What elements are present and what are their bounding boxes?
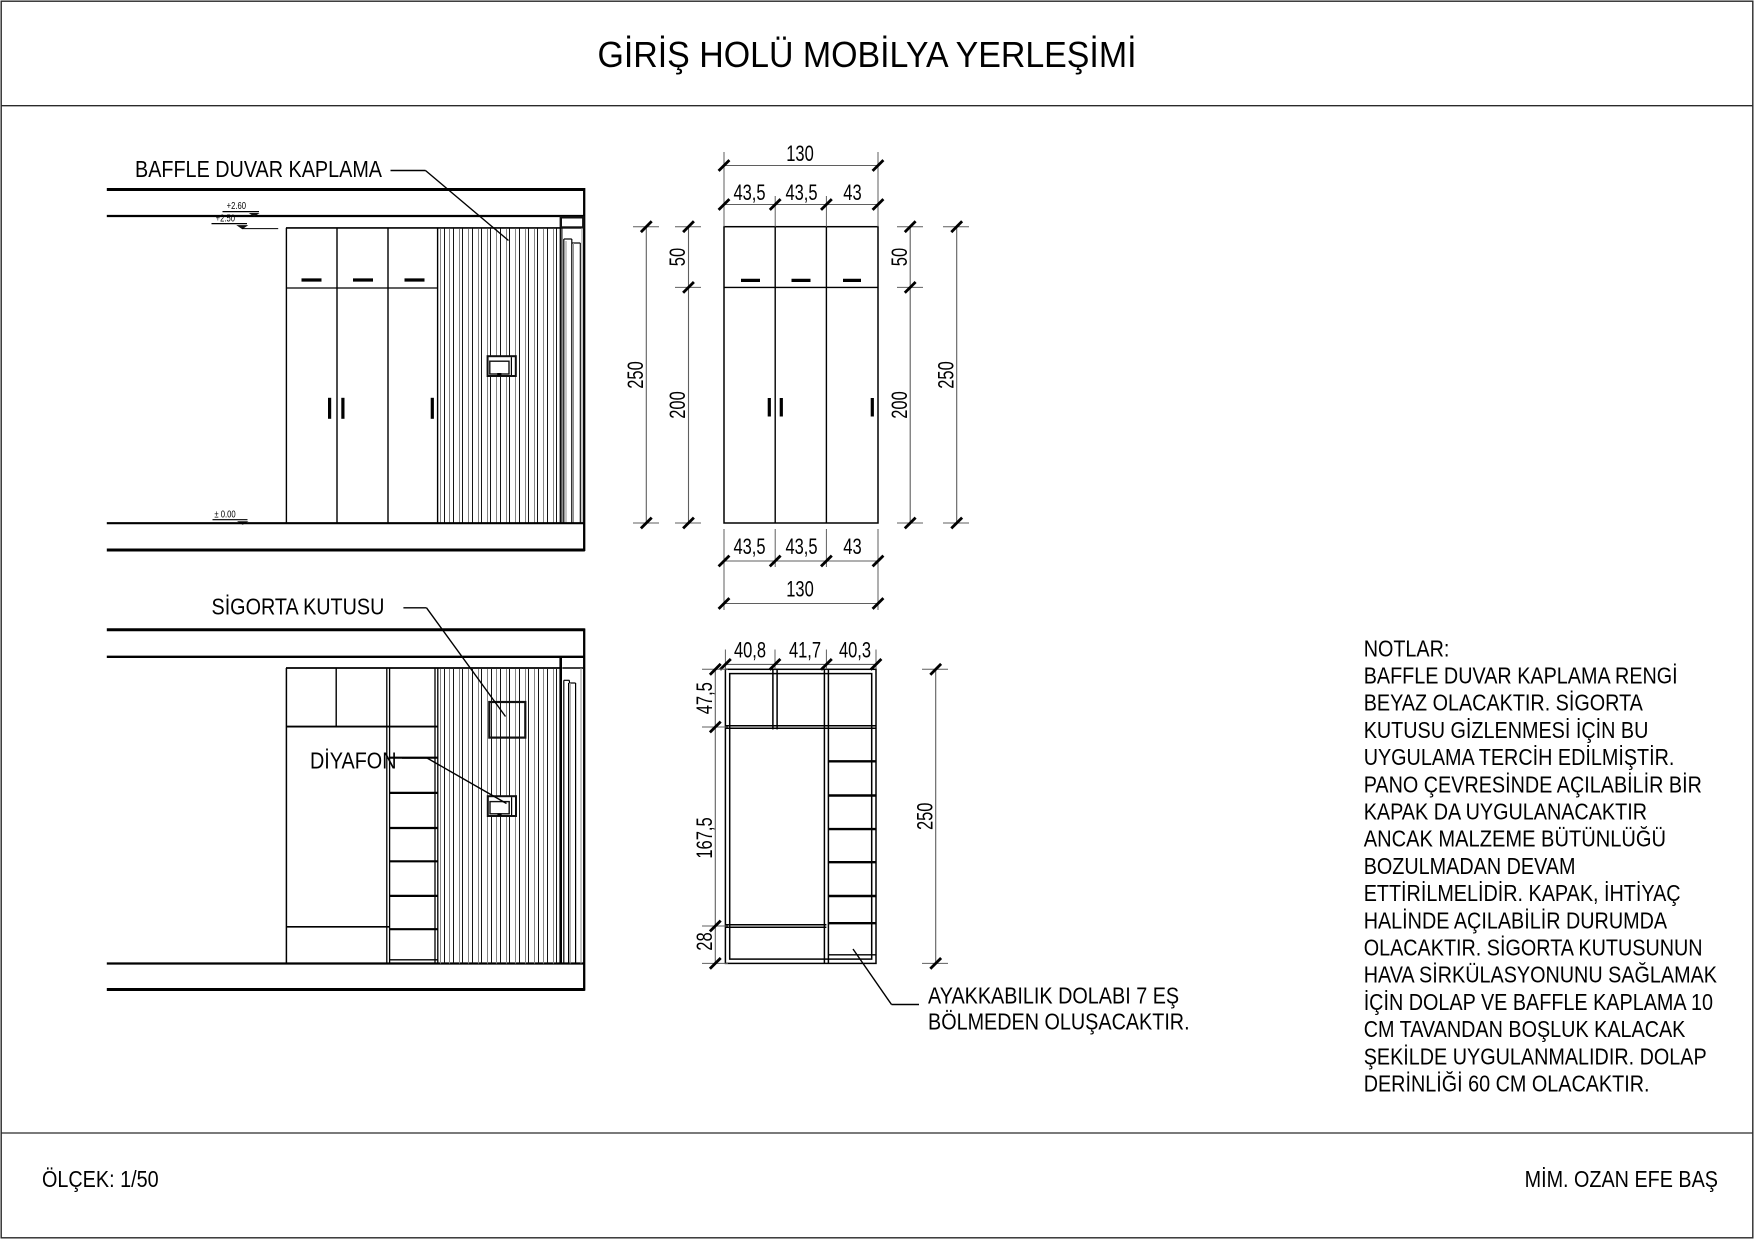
svg-text:43: 43 [843,180,861,205]
svg-text:ETTİRİLMELİDİR. KAPAK, İHTİYAÇ: ETTİRİLMELİDİR. KAPAK, İHTİYAÇ [1364,880,1681,906]
svg-text:+2.50: +2.50 [216,213,236,225]
svg-text:200: 200 [887,391,912,419]
svg-text:200: 200 [665,391,690,419]
svg-text:50: 50 [887,248,912,266]
svg-text:KUTUSU GİZLENMESİ İÇİN BU: KUTUSU GİZLENMESİ İÇİN BU [1364,717,1649,743]
svg-text:UYGULAMA TERCİH EDİLMİŞTİR.: UYGULAMA TERCİH EDİLMİŞTİR. [1364,744,1675,770]
svg-text:İÇİN DOLAP VE BAFFLE KAPLAMA 1: İÇİN DOLAP VE BAFFLE KAPLAMA 10 [1364,989,1713,1015]
svg-text:BOZULMADAN DEVAM: BOZULMADAN DEVAM [1364,853,1576,879]
svg-text:43,5: 43,5 [733,180,765,205]
svg-text:AYAKKABILIK DOLABI 7 EŞ: AYAKKABILIK DOLABI 7 EŞ [928,982,1179,1008]
svg-text:ANCAK MALZEME BÜTÜNLÜĞÜ: ANCAK MALZEME BÜTÜNLÜĞÜ [1364,826,1666,852]
svg-text:43,5: 43,5 [785,534,817,559]
svg-text:28: 28 [692,932,717,950]
svg-text:BAFFLE DUVAR KAPLAMA RENGİ: BAFFLE DUVAR KAPLAMA RENGİ [1364,663,1678,689]
svg-text:43: 43 [843,534,861,559]
svg-text:BEYAZ OLACAKTIR. SİGORTA: BEYAZ OLACAKTIR. SİGORTA [1364,690,1644,716]
svg-text:OLACAKTIR. SİGORTA KUTUSUNUN: OLACAKTIR. SİGORTA KUTUSUNUN [1364,935,1703,961]
svg-text:KAPAK DA UYGULANACAKTIR: KAPAK DA UYGULANACAKTIR [1364,799,1647,825]
svg-text:130: 130 [786,141,814,166]
svg-text:MİM. OZAN EFE BAŞ: MİM. OZAN EFE BAŞ [1525,1166,1718,1192]
svg-text:HALİNDE AÇILABİLİR DURUMDA: HALİNDE AÇILABİLİR DURUMDA [1364,907,1668,933]
svg-text:SİGORTA KUTUSU: SİGORTA KUTUSU [212,593,385,619]
svg-text:50: 50 [665,248,690,266]
svg-text:250: 250 [933,361,958,389]
svg-text:43,5: 43,5 [785,180,817,205]
svg-text:40,8: 40,8 [734,638,766,663]
svg-text:PANO ÇEVRESİNDE AÇILABİLİR BİR: PANO ÇEVRESİNDE AÇILABİLİR BİR [1364,771,1702,797]
svg-text:+2.60: +2.60 [227,200,247,212]
svg-text:130: 130 [786,577,814,602]
svg-text:167,5: 167,5 [692,817,717,858]
svg-text:NOTLAR:: NOTLAR: [1364,635,1450,661]
svg-text:DİYAFON: DİYAFON [310,747,397,773]
svg-text:BÖLMEDEN OLUŞACAKTIR.: BÖLMEDEN OLUŞACAKTIR. [928,1009,1190,1035]
svg-text:40,3: 40,3 [839,638,871,663]
svg-text:ŞEKİLDE UYGULANMALIDIR. DOLAP: ŞEKİLDE UYGULANMALIDIR. DOLAP [1364,1043,1707,1069]
svg-text:BAFFLE DUVAR KAPLAMA: BAFFLE DUVAR KAPLAMA [135,156,383,182]
svg-text:47,5: 47,5 [692,682,717,714]
svg-text:43,5: 43,5 [733,534,765,559]
svg-text:CM TAVANDAN BOŞLUK KALACAK: CM TAVANDAN BOŞLUK KALACAK [1364,1016,1686,1042]
svg-text:ÖLÇEK: 1/50: ÖLÇEK: 1/50 [42,1166,159,1192]
svg-text:250: 250 [912,803,937,831]
svg-text:HAVA SİRKÜLASYONUNU SAĞLAMAK: HAVA SİRKÜLASYONUNU SAĞLAMAK [1364,962,1718,988]
svg-text:DERİNLİĞİ 60 CM OLACAKTIR.: DERİNLİĞİ 60 CM OLACAKTIR. [1364,1071,1650,1097]
svg-text:41,7: 41,7 [789,638,821,663]
svg-text:± 0.00: ± 0.00 [214,508,235,520]
svg-text:GİRİŞ HOLÜ MOBİLYA YERLEŞİMİ: GİRİŞ HOLÜ MOBİLYA YERLEŞİMİ [597,34,1136,75]
svg-text:250: 250 [623,361,648,389]
